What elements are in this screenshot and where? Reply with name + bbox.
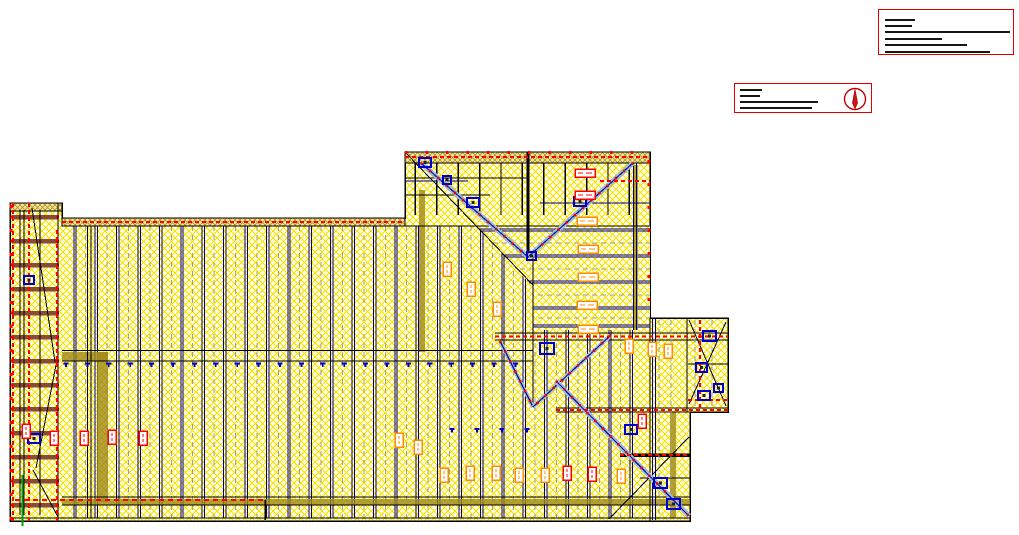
callout-label-box: [139, 431, 147, 445]
hanger-tick: [476, 428, 478, 433]
title-text-line: [885, 38, 942, 40]
hanger-square-dot: [703, 394, 706, 397]
title-text-line: [740, 89, 762, 91]
callout-label-box: [563, 466, 571, 480]
callout-label-box: [493, 302, 501, 316]
hanger-tick: [151, 363, 153, 368]
callout-label-box: [466, 466, 474, 480]
hanger-square-dot: [33, 437, 36, 440]
framing-plan-root: [10, 152, 728, 526]
callout-label-box: [414, 440, 422, 454]
title-text-line: [885, 25, 912, 27]
glulam-beam: [419, 190, 425, 352]
callout-label-box: [664, 344, 672, 358]
hanger-tick: [515, 363, 517, 368]
hanger-tick: [108, 363, 110, 368]
hanger-tick: [450, 363, 452, 368]
callout-label-box: [467, 282, 475, 296]
framing-plan-svg: [0, 0, 1019, 535]
hanger-tick: [429, 363, 431, 368]
callout-label-box: [648, 342, 656, 356]
hanger-square-dot: [717, 387, 720, 390]
hanger-tick: [215, 363, 217, 368]
porch-beam: [12, 479, 58, 484]
callout-label-box: [492, 466, 500, 480]
title-text-line: [740, 101, 818, 103]
hanger-tick: [194, 363, 196, 368]
hanger-tick: [87, 363, 89, 368]
hanger-square-dot: [546, 347, 549, 350]
title-text-line: [740, 95, 760, 97]
title-text-line: [885, 19, 915, 21]
plate-band: [10, 203, 62, 211]
hanger-tick: [472, 363, 474, 368]
callout-label-box: [395, 433, 403, 447]
glulam-beam: [62, 499, 690, 505]
porch-beam: [12, 263, 58, 268]
north-arrow-part: [853, 90, 858, 109]
callout-label-box: [638, 414, 646, 428]
title-text-line: [885, 51, 990, 53]
hanger-square-dot: [530, 255, 533, 258]
hanger-tick: [526, 428, 528, 433]
hanger-tick: [301, 363, 303, 368]
callout-label-box: [625, 339, 633, 353]
callout-label-box: [50, 431, 58, 445]
hanger-square-dot: [446, 179, 449, 182]
porch-beam: [12, 383, 58, 388]
porch-beam: [12, 311, 58, 316]
callout-label-box: [22, 424, 30, 438]
title-block-secondary: [734, 83, 872, 113]
hanger-tick: [279, 363, 281, 368]
hanger-tick: [236, 363, 238, 368]
porch-beam: [12, 407, 58, 412]
glulam-beam: [97, 352, 108, 502]
hanger-tick: [258, 363, 260, 368]
callout-label-box: [515, 468, 523, 482]
hanger-tick: [408, 363, 410, 368]
title-text-line: [885, 31, 1010, 33]
callout-label-box: [443, 262, 451, 276]
hanger-square-dot: [659, 482, 662, 485]
callout-label-box: [108, 430, 116, 444]
porch-beam: [12, 239, 58, 244]
hanger-tick: [172, 363, 174, 368]
title-block-primary: [878, 9, 1014, 55]
hanger-tick: [343, 363, 345, 368]
hanger-tick: [493, 363, 495, 368]
callout-label-box: [541, 468, 549, 482]
title-text-line: [885, 44, 967, 46]
callout-label-box: [440, 468, 448, 482]
porch-beam: [12, 215, 58, 220]
hanger-square-dot: [700, 366, 703, 369]
hanger-tick: [365, 363, 367, 368]
hanger-tick: [65, 363, 67, 368]
hanger-square-dot: [672, 503, 675, 506]
hanger-square-dot: [708, 335, 711, 338]
callout-label-box: [80, 431, 88, 445]
hanger-square-dot: [424, 161, 427, 164]
hanger-tick: [322, 363, 324, 368]
porch-beam: [12, 287, 58, 292]
hanger-tick: [451, 428, 453, 433]
title-text-line: [740, 107, 812, 109]
porch-beam: [12, 359, 58, 364]
framing-plan-page: { "page": {"width": 1019, "height": 535,…: [0, 0, 1019, 535]
porch-beam: [12, 455, 58, 460]
hanger-tick: [129, 363, 131, 368]
hanger-square-dot: [472, 201, 475, 204]
hanger-square-dot: [28, 279, 31, 282]
hanger-square-dot: [579, 200, 582, 203]
hanger-tick: [501, 428, 503, 433]
callout-label-box: [588, 467, 596, 481]
hanger-tick: [386, 363, 388, 368]
north-arrow-icon: [843, 87, 867, 111]
callout-label-box: [617, 469, 625, 483]
hanger-square-dot: [630, 428, 633, 431]
